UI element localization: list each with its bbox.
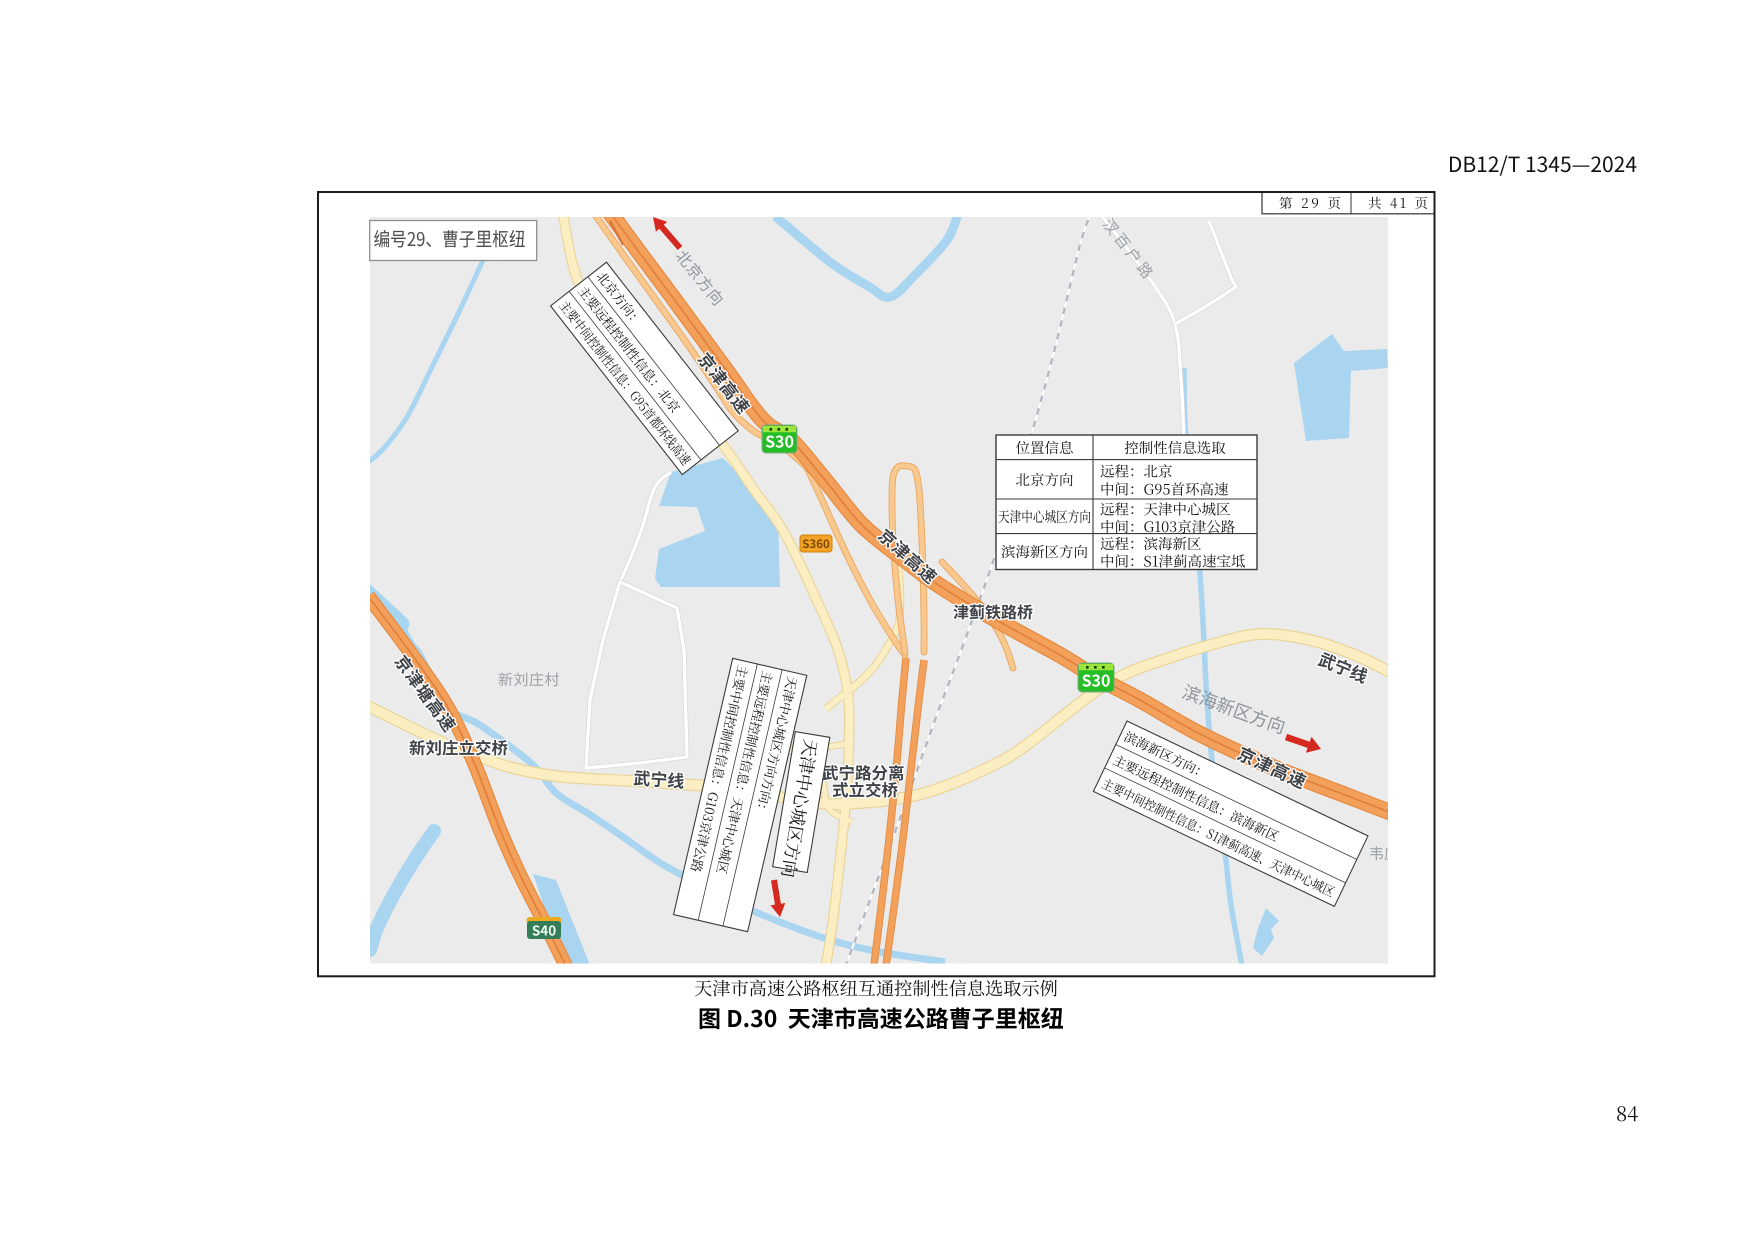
svg-text:S30: S30 bbox=[1082, 668, 1111, 692]
svg-text:北京方向: 北京方向 bbox=[1016, 469, 1074, 490]
svg-text:编号29、曹子里枢纽: 编号29、曹子里枢纽 bbox=[374, 225, 526, 252]
svg-text:S360: S360 bbox=[802, 536, 830, 552]
svg-text:韦庄: 韦庄 bbox=[1369, 843, 1399, 864]
svg-text:控制性信息选取: 控制性信息选取 bbox=[1124, 437, 1226, 458]
svg-text:天津中心城区方向: 天津中心城区方向 bbox=[998, 506, 1091, 527]
svg-text:滨海新区方向: 滨海新区方向 bbox=[1001, 541, 1088, 562]
svg-text:新刘庄立交桥: 新刘庄立交桥 bbox=[409, 735, 509, 759]
svg-text:武宁线: 武宁线 bbox=[633, 764, 686, 792]
svg-text:新刘庄村: 新刘庄村 bbox=[498, 669, 560, 690]
svg-text:中间：S1津蓟高速宝坻: 中间：S1津蓟高速宝坻 bbox=[1100, 551, 1246, 572]
svg-text:位置信息: 位置信息 bbox=[1016, 437, 1074, 458]
svg-text:S30: S30 bbox=[765, 429, 794, 453]
svg-text:津蓟铁路桥: 津蓟铁路桥 bbox=[953, 599, 1033, 623]
svg-text:S40: S40 bbox=[532, 920, 556, 940]
svg-text:中间：G95首环高速: 中间：G95首环高速 bbox=[1100, 479, 1229, 500]
svg-text:式立交桥: 式立交桥 bbox=[832, 777, 899, 801]
